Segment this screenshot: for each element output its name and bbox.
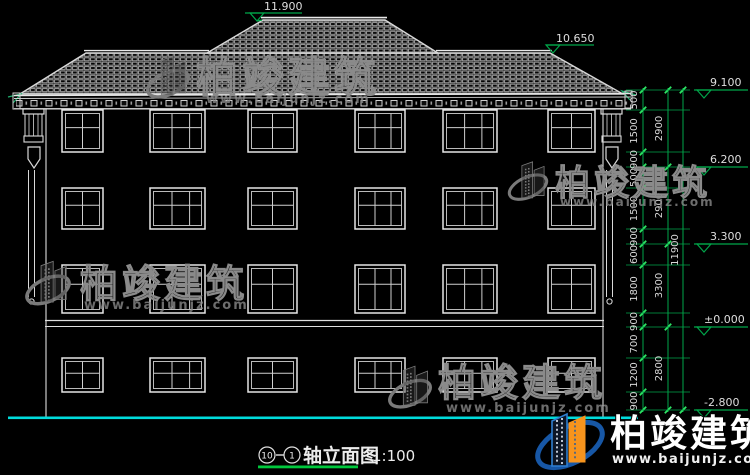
- dim-label: 900: [629, 227, 640, 246]
- capital-base: [602, 136, 621, 142]
- window: [248, 110, 297, 152]
- elev-eave-label: 9.100: [710, 76, 742, 89]
- dimension-chain-small: 500 1500 900 500 1500 900 600 1800 900 7…: [629, 90, 640, 410]
- marker-floor2: [694, 244, 748, 252]
- window: [355, 188, 405, 229]
- dimension-chain-floor: 2900 2900 3300 2800: [654, 116, 665, 381]
- watermark-url: www.baijunjz.com: [560, 195, 715, 209]
- watermark-bottom-center: 柏竣建筑 www.baijunjz.com: [386, 361, 611, 416]
- dim-label: 2800: [654, 356, 665, 381]
- windows: [62, 110, 595, 392]
- watermark-url: www.baijunjz.com: [446, 401, 611, 416]
- marker-eave: [694, 90, 748, 98]
- window: [62, 358, 103, 392]
- window: [443, 265, 497, 313]
- dim-label: 900: [629, 312, 640, 331]
- elevation-drawing: 500 1500 900 500 1500 900 600 1800 900 7…: [0, 0, 750, 475]
- brand-url: www.baijunjz.com: [612, 452, 750, 467]
- window: [248, 358, 297, 392]
- dim-label: 500: [629, 90, 640, 109]
- title-block: 10 1 轴立面图 1:100: [258, 444, 415, 468]
- dim-label: 2900: [654, 116, 665, 141]
- drawing-title: 轴立面图: [303, 444, 379, 467]
- dim-label: 600: [629, 245, 640, 264]
- watermark-url: www.baijunjz.com: [206, 92, 371, 107]
- window: [62, 188, 103, 229]
- watermark-mid-left: 柏竣建筑 www.baijunjz.com: [23, 261, 249, 313]
- brand-title: 柏竣建筑: [610, 412, 750, 455]
- dim-total-height: 11900: [670, 234, 681, 266]
- window: [150, 110, 205, 152]
- brand-block: 柏竣建筑 www.baijunjz.com: [531, 412, 750, 475]
- window: [248, 265, 297, 313]
- elev-floor2-label: 3.300: [710, 230, 742, 243]
- watermark-logo-icon: [506, 162, 551, 205]
- window: [62, 110, 103, 152]
- axis-bubble-end-label: 1: [289, 452, 295, 462]
- ground-line: [8, 417, 638, 420]
- window: [150, 188, 205, 229]
- roof-center-section: [207, 20, 438, 53]
- capital-base: [24, 136, 43, 142]
- elev-side-ridge-label: 10.650: [556, 32, 595, 45]
- window: [150, 358, 205, 392]
- elev-ridge-label: 11.900: [264, 0, 303, 13]
- pendant-finial: [28, 147, 40, 168]
- brand-logo-icon: [531, 413, 610, 475]
- watermark-mid-right: 柏竣建筑 www.baijunjz.com: [506, 162, 715, 209]
- dim-label: 1500: [629, 118, 640, 143]
- watermark-title: 柏竣建筑: [438, 361, 606, 405]
- watermark-url: www.baijunjz.com: [84, 298, 249, 313]
- window: [355, 265, 405, 313]
- elev-basement-label: -2.800: [704, 396, 739, 409]
- marker-side-ridge: [546, 45, 594, 53]
- capital-abacus: [601, 109, 622, 114]
- title-underline: [258, 466, 358, 469]
- capital-abacus: [23, 109, 44, 114]
- window: [443, 110, 497, 152]
- downspout-outlet: [607, 299, 612, 304]
- dim-label: 1200: [629, 362, 640, 387]
- window: [443, 188, 497, 229]
- cad-canvas: 500 1500 900 500 1500 900 600 1800 900 7…: [0, 0, 750, 475]
- window: [355, 110, 405, 152]
- window: [248, 188, 297, 229]
- window: [548, 265, 595, 313]
- drawing-scale: 1:100: [372, 447, 415, 465]
- dim-label: 900: [629, 391, 640, 410]
- marker-ground-floor: [694, 327, 748, 335]
- axis-bubble-start-label: 10: [261, 452, 273, 462]
- dim-label: 3300: [654, 273, 665, 298]
- dim-label: 700: [629, 334, 640, 353]
- window: [548, 110, 595, 152]
- elev-floor3-label: 6.200: [710, 153, 742, 166]
- elev-ground-label: ±0.000: [704, 313, 745, 326]
- dim-label: 1800: [629, 276, 640, 301]
